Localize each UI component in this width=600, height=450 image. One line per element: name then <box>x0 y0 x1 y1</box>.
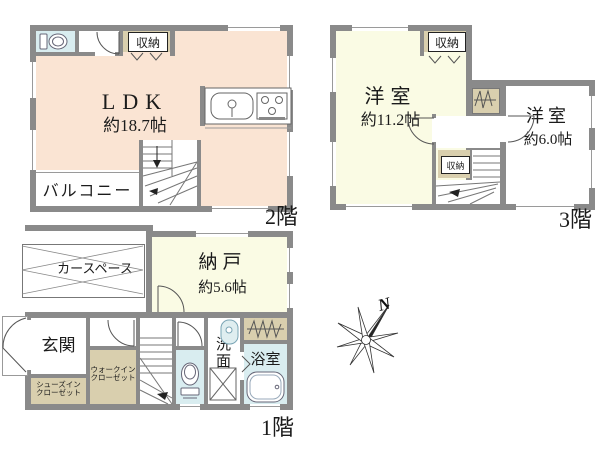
washer-icon <box>210 368 236 400</box>
compass-north-label: N <box>375 293 393 315</box>
floor-plan: 収納 LDK 約18.7帖 バルコニー 2階 収納 収納 洋室 約11.2帖 洋… <box>0 0 600 450</box>
hanger-icon-1f <box>247 321 284 337</box>
toilet-icon-2f <box>40 34 67 49</box>
car-space-lines <box>22 246 143 294</box>
hanger-icon-3f <box>474 91 496 108</box>
toilet-icon-1f <box>181 363 199 398</box>
open-arrow-icons-2f <box>131 53 162 60</box>
door-arc-hall-1f <box>108 320 202 346</box>
stairs-lines-1f <box>140 338 172 404</box>
compass-rose-icon: N <box>337 293 398 373</box>
door-arc-entrance <box>3 318 26 372</box>
door-arc-nando <box>158 286 184 312</box>
sink-icon <box>221 320 238 344</box>
open-arrow-icons-3f <box>429 56 460 63</box>
bathtub-icon <box>247 372 284 402</box>
door-arc-hall-2f <box>97 32 119 54</box>
plan-graphics: N <box>0 0 600 450</box>
folding-door-bath <box>242 356 250 372</box>
door-arc-hall-3f <box>408 116 534 144</box>
kitchen-counter-icon <box>205 88 291 128</box>
stairs-lines-2f <box>143 140 197 205</box>
stairs-lines-3f <box>436 156 500 204</box>
